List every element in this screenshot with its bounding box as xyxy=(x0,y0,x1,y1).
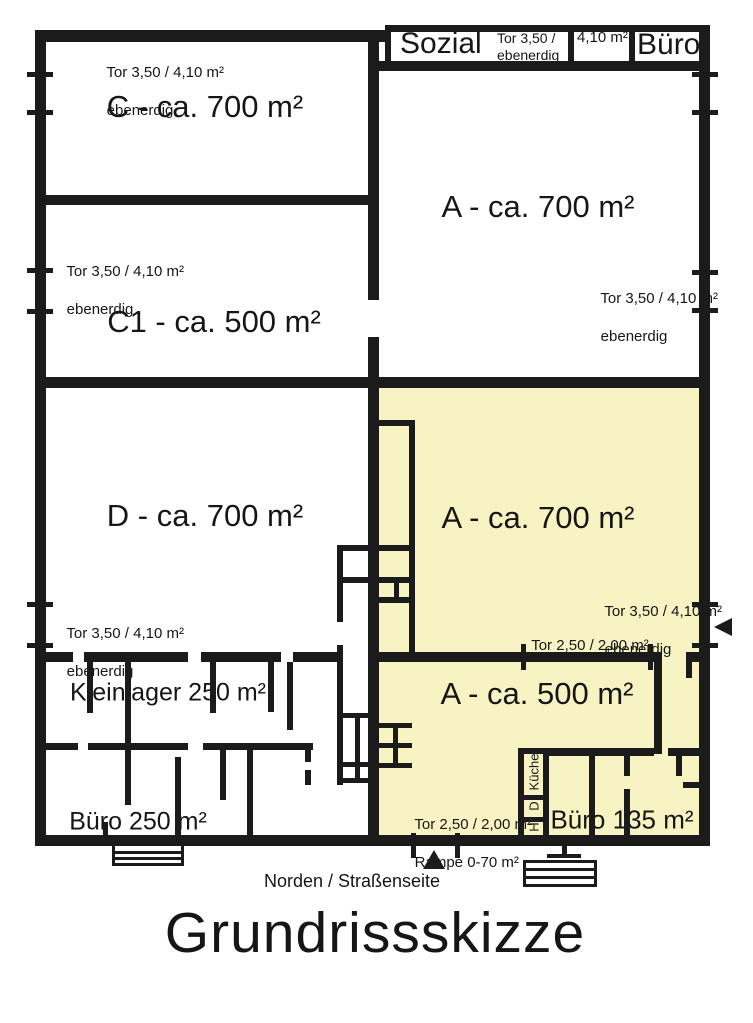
wall-segment xyxy=(385,25,391,68)
grid-tick xyxy=(692,110,718,115)
page-title: Grundrissskizze xyxy=(165,900,585,966)
grid-tick xyxy=(455,833,460,858)
wall-segment xyxy=(379,545,415,551)
grid-tick xyxy=(27,268,53,273)
door-note-d-line1: Tor 3,50 / 4,10 m² xyxy=(66,625,184,642)
wall-segment xyxy=(379,61,710,71)
grid-tick xyxy=(692,270,718,275)
wall-segment xyxy=(523,860,597,863)
door-note-c-line1: Tor 3,50 / 4,10 m² xyxy=(106,64,224,81)
wall-segment xyxy=(393,723,398,768)
door-note-c1: Tor 3,50 / 4,10 m² ebenerdig xyxy=(50,243,184,338)
wall-segment xyxy=(35,377,710,388)
grid-tick xyxy=(27,110,53,115)
door-note-d-line2: ebenerdig xyxy=(67,663,134,680)
wall-segment xyxy=(88,743,188,750)
wall-segment xyxy=(589,756,595,836)
door-note-c: Tor 3,50 / 4,10 m² ebenerdig xyxy=(90,44,224,139)
room-label-d: D - ca. 700 m² xyxy=(107,498,303,534)
door-note-c1-line2: ebenerdig xyxy=(67,301,134,318)
grid-tick xyxy=(692,308,718,313)
wall-segment xyxy=(523,868,597,871)
wall-segment xyxy=(368,337,379,846)
north-label: Norden / Straßenseite xyxy=(264,871,440,892)
room-label-sozial: Sozial xyxy=(400,29,482,59)
room-label-buero-top: Büro xyxy=(637,30,700,60)
grid-tick xyxy=(692,643,718,648)
wall-segment xyxy=(368,30,379,300)
wall-segment xyxy=(337,545,343,622)
wall-segment xyxy=(549,748,654,756)
room-label-cell-h: H xyxy=(527,822,542,831)
wall-segment xyxy=(337,545,379,551)
wall-segment xyxy=(35,30,390,42)
wall-segment xyxy=(654,662,662,754)
wall-segment xyxy=(518,748,524,836)
wall-segment xyxy=(84,652,188,662)
room-label-buero250: Büro 250 m² xyxy=(69,808,207,837)
wall-segment xyxy=(624,789,630,836)
wall-segment xyxy=(543,748,549,836)
wall-segment xyxy=(676,756,682,776)
wall-segment xyxy=(523,876,597,879)
wall-segment xyxy=(181,843,184,866)
wall-segment xyxy=(368,652,662,662)
wall-segment xyxy=(394,583,399,603)
wall-segment xyxy=(112,851,184,854)
room-label-kleinlager: Kleinlager 250 m² xyxy=(70,679,266,708)
grid-tick xyxy=(411,833,416,858)
wall-segment xyxy=(247,750,253,835)
wall-segment xyxy=(523,884,597,887)
wall-segment xyxy=(305,747,311,762)
wall-segment xyxy=(629,25,635,68)
wall-segment xyxy=(220,750,226,800)
door-note-c1-line1: Tor 3,50 / 4,10 m² xyxy=(66,263,184,280)
ramp-note-line1: Tor 2,50 / 2,00 m² xyxy=(414,816,532,833)
door-note-a-top: Tor 3,50 / 4,10 m² ebenerdig xyxy=(584,270,718,365)
wall-segment xyxy=(518,817,549,822)
wall-segment xyxy=(355,713,360,783)
wall-segment xyxy=(175,757,181,835)
wall-segment xyxy=(337,577,379,583)
grid-tick xyxy=(692,602,718,607)
door-note-c-line2: ebenerdig xyxy=(107,102,174,119)
room-label-a-top: A - ca. 700 m² xyxy=(442,189,635,225)
room-label-cell-d: D xyxy=(527,801,542,810)
grid-tick xyxy=(27,72,53,77)
wall-segment xyxy=(112,857,184,860)
wall-segment xyxy=(201,652,281,662)
wall-segment xyxy=(305,770,311,785)
wall-segment xyxy=(568,25,574,68)
grid-tick xyxy=(27,602,53,607)
wall-segment xyxy=(35,652,73,662)
wall-segment xyxy=(668,748,700,756)
door-note-a-top-line2: ebenerdig xyxy=(601,328,668,345)
room-label-kueche: Küche xyxy=(527,754,542,791)
grid-tick xyxy=(103,822,108,836)
wall-segment xyxy=(112,863,184,866)
wall-segment xyxy=(699,25,710,846)
wall-segment xyxy=(547,854,581,858)
wall-segment xyxy=(409,426,415,652)
wall-segment xyxy=(35,743,78,750)
wall-segment xyxy=(268,662,274,712)
wall-segment xyxy=(686,662,692,678)
grid-tick xyxy=(521,644,526,670)
wall-segment xyxy=(287,662,293,730)
grid-tick xyxy=(27,643,53,648)
wall-segment xyxy=(210,662,216,713)
wall-segment xyxy=(518,748,549,754)
wall-segment xyxy=(686,652,700,662)
wall-segment xyxy=(518,795,549,800)
wall-segment xyxy=(523,860,526,887)
floor-plan: Sozial Tor 3,50 / ebenerdig 4,10 m² Büro… xyxy=(0,0,753,1023)
grid-tick xyxy=(692,72,718,77)
wall-segment xyxy=(594,860,597,887)
wall-segment xyxy=(35,30,46,846)
wall-segment xyxy=(112,843,115,866)
room-label-buero135: Büro 135 m² xyxy=(550,805,693,836)
wall-segment xyxy=(293,652,337,662)
wall-segment xyxy=(87,662,93,713)
wall-segment xyxy=(683,782,707,788)
wall-segment xyxy=(125,750,131,805)
room-label-a-mid: A - ca. 700 m² xyxy=(442,500,635,536)
room-label-a-low: A - ca. 500 m² xyxy=(441,676,634,712)
wall-segment xyxy=(125,662,131,743)
grid-tick xyxy=(27,309,53,314)
grid-tick xyxy=(648,644,653,670)
north-arrow-icon xyxy=(423,850,445,869)
wall-segment xyxy=(203,743,313,750)
wall-segment xyxy=(385,25,710,32)
wall-segment xyxy=(35,195,379,205)
wall-segment xyxy=(112,843,184,846)
west-entry-arrow-icon xyxy=(714,618,732,636)
wall-segment xyxy=(624,756,630,776)
